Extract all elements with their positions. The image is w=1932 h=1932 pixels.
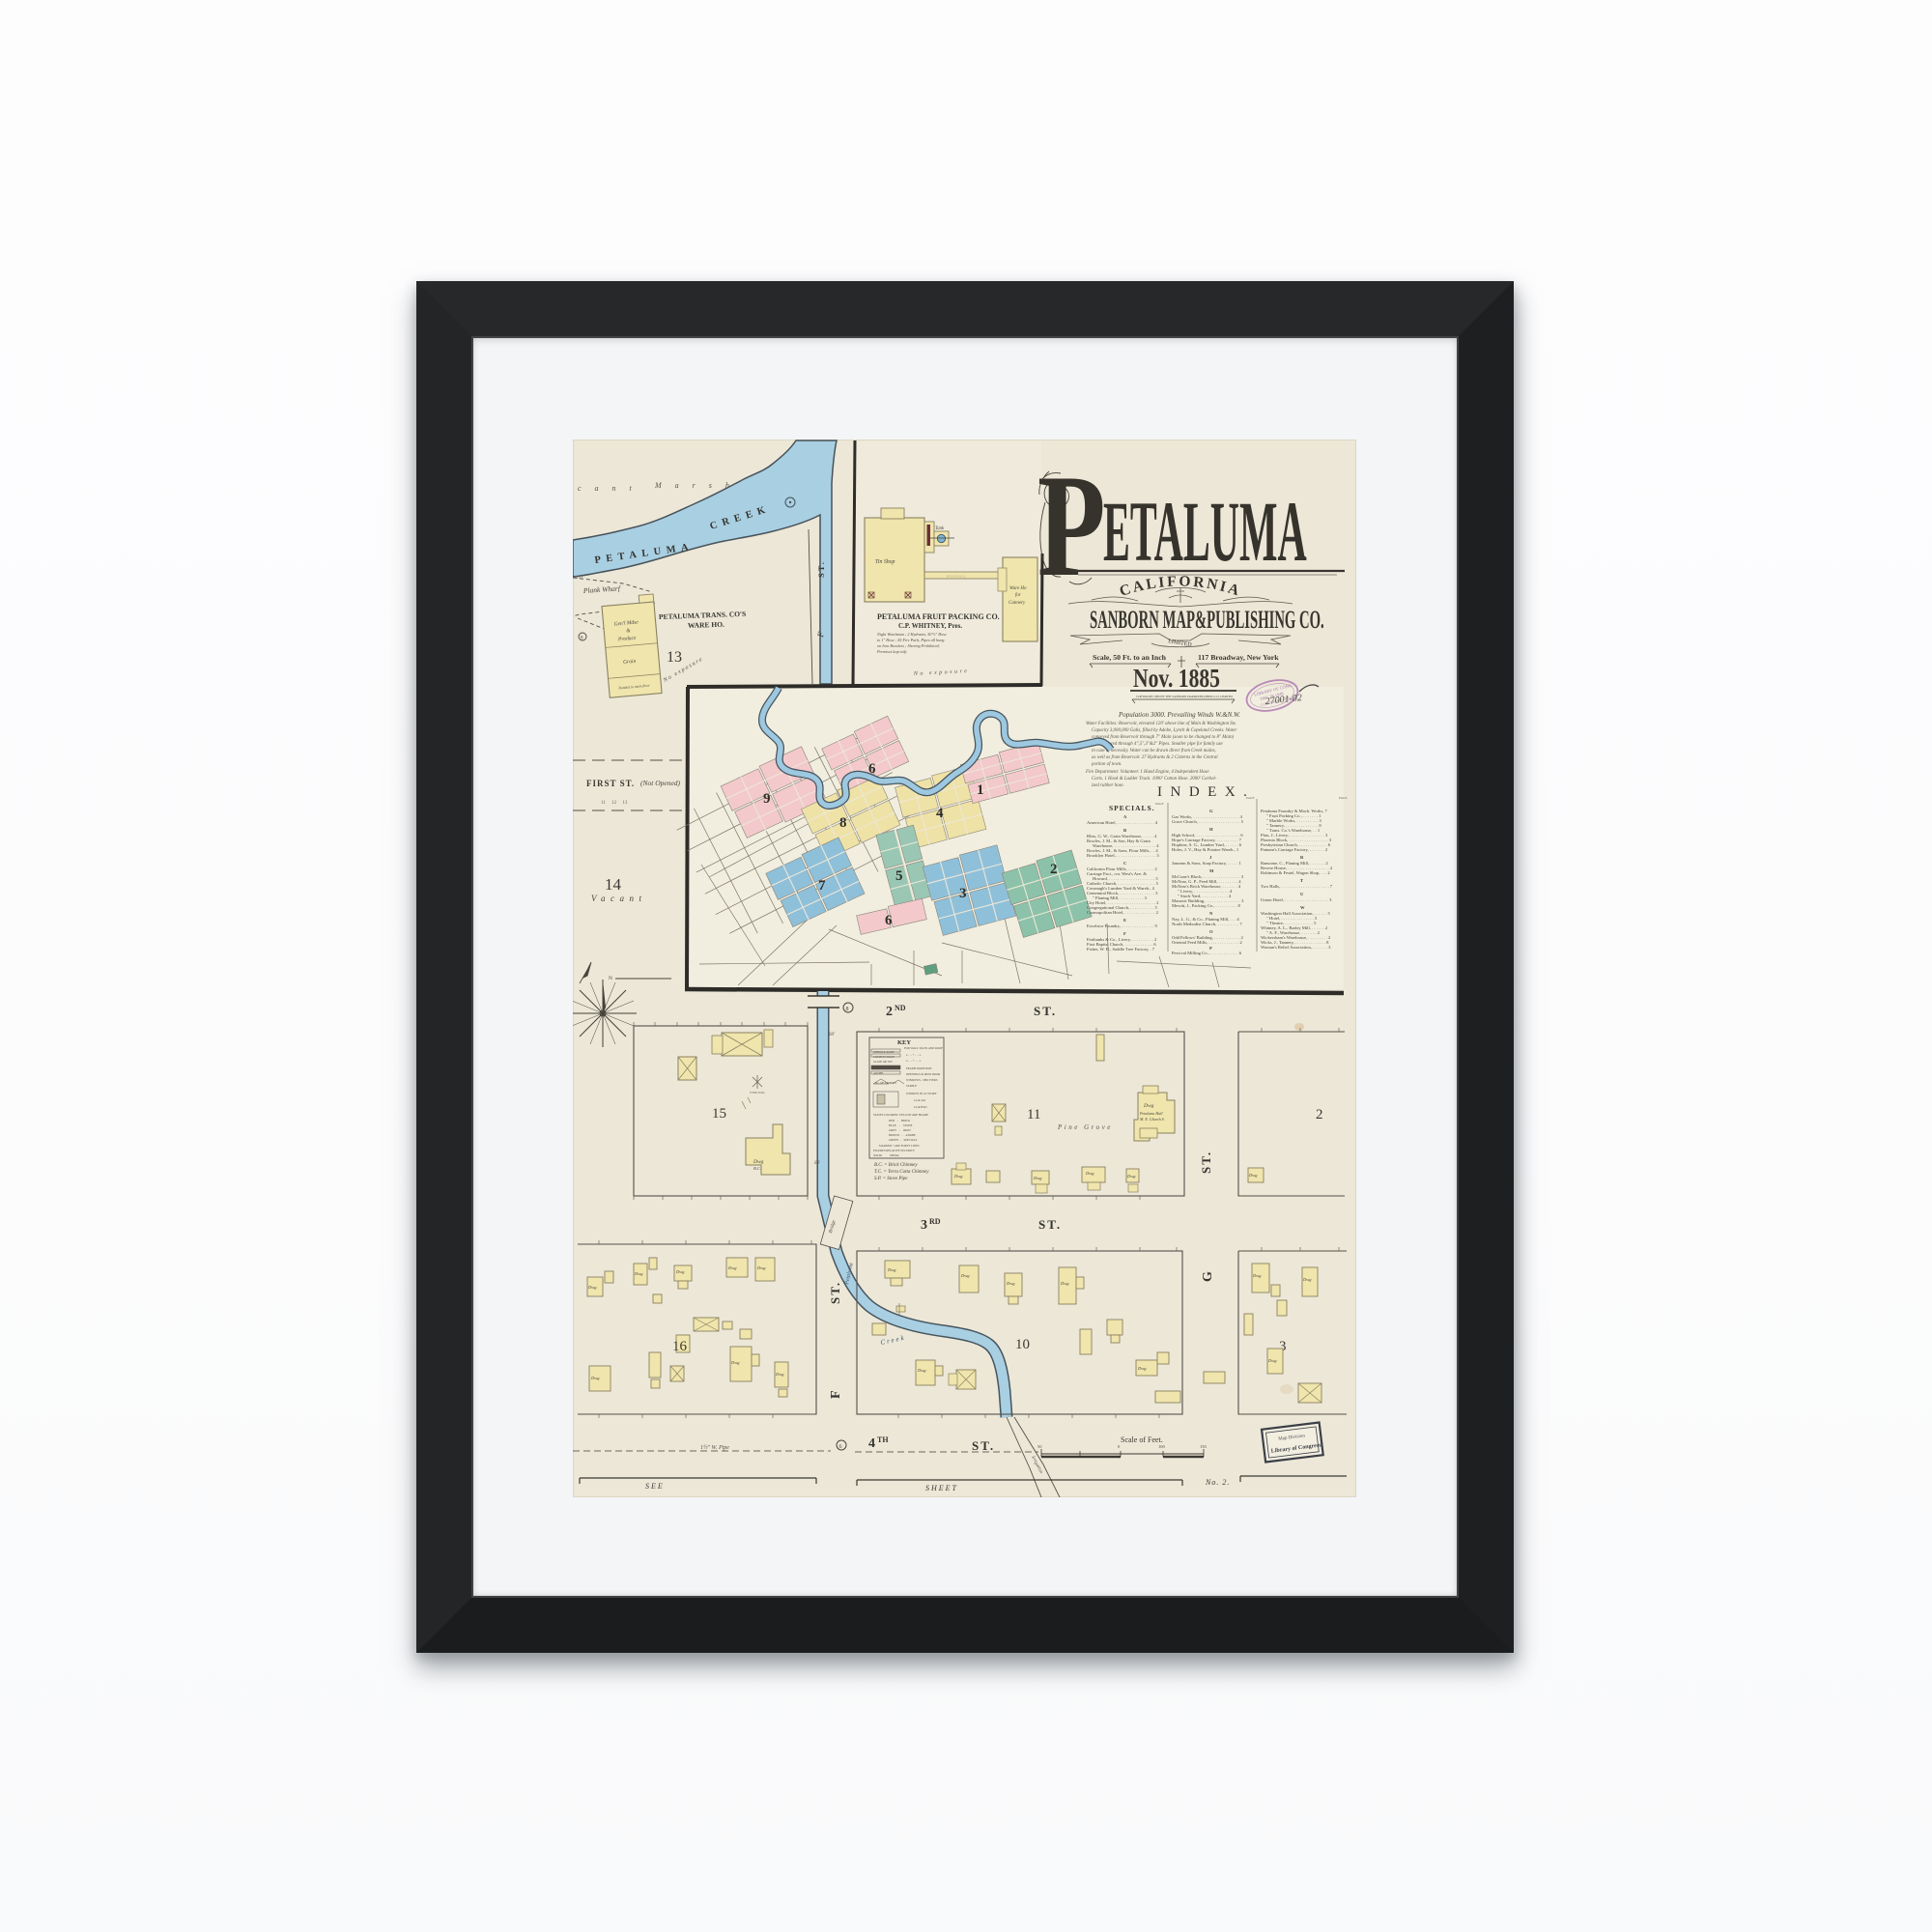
svg-text:c a n t: c a n t (578, 484, 638, 493)
svg-text:(Not Opened): (Not Opened) (640, 779, 681, 787)
svg-text:50: 50 (1037, 1444, 1042, 1449)
svg-text:ST.: ST. (1199, 1151, 1213, 1174)
svg-text:portion of town.: portion of town. (1091, 762, 1122, 767)
svg-text:Nov. 1885: Nov. 1885 (1133, 665, 1220, 694)
svg-text:60': 60' (829, 1033, 836, 1037)
svg-text:SOLID METAL: SOLID METAL (873, 1153, 899, 1157)
svg-text:G: G (1201, 1271, 1215, 1282)
svg-text:F: F (829, 1390, 843, 1399)
svg-text:x . . . + . . . o: x . . . + . . . o (906, 1053, 922, 1057)
svg-text:10: 10 (1015, 1337, 1030, 1352)
svg-text:W: W (1300, 905, 1305, 910)
svg-text:STABLE: STABLE (906, 1084, 917, 1088)
svg-text:FRAME PARTITION: FRAME PARTITION (906, 1066, 932, 1070)
svg-text:Water Facilities: Reservoir, e: Water Facilities: Reservoir, elevated 12… (1086, 722, 1236, 726)
svg-text:WINDOWS - SHUTTERS: WINDOWS - SHUTTERS (906, 1078, 938, 1082)
svg-text:S.P. = Stove Pipe: S.P. = Stove Pipe (874, 1177, 908, 1181)
svg-text:C.P. WHITNEY, Pres.: C.P. WHITNEY, Pres. (898, 622, 962, 630)
svg-text:1½" W. Pipe: 1½" W. Pipe (700, 1444, 729, 1451)
svg-text:B.C.: B.C. (753, 1166, 761, 1171)
svg-text:1: 1 (977, 782, 984, 798)
svg-text:7: 7 (818, 878, 826, 894)
svg-text:6: 6 (885, 913, 893, 928)
svg-text:ST.: ST. (828, 1281, 842, 1304)
svg-text:2: 2 (1316, 1107, 1323, 1122)
svg-text:M: M (1209, 868, 1214, 873)
svg-text:GREEN - SPECIALS: GREEN - SPECIALS (889, 1138, 918, 1142)
svg-text:SEE: SEE (645, 1482, 665, 1491)
svg-text:ND: ND (895, 1004, 906, 1012)
svg-text:Pine Grove: Pine Grove (1057, 1123, 1113, 1131)
svg-text:16: 16 (672, 1339, 688, 1354)
svg-text:ST.: ST. (816, 560, 826, 578)
svg-text:Dwg: Dwg (1085, 1171, 1094, 1176)
svg-text:ST.: ST. (972, 1438, 995, 1453)
svg-text:Dwg: Dwg (587, 1285, 597, 1290)
svg-text:Premises kept tidy: Premises kept tidy (876, 649, 907, 654)
svg-text:2: 2 (1050, 862, 1058, 877)
svg-text:on Iron Brackets ; Shoring Pro: on Iron Brackets ; Shoring Prohibited; (877, 643, 941, 648)
svg-text:4: 4 (936, 806, 944, 821)
svg-text:Dwg: Dwg (1252, 1273, 1262, 1278)
svg-text:for: for (1015, 593, 1021, 598)
svg-text:Dwg: Dwg (1143, 1103, 1154, 1109)
svg-text:13: 13 (667, 649, 682, 666)
svg-text:No. OF STORIES: No. OF STORIES (875, 1081, 896, 1085)
svg-text:KEY: KEY (897, 1039, 911, 1046)
svg-text:Dwg: Dwg (727, 1265, 737, 1270)
svg-text:G: G (1209, 809, 1213, 813)
svg-text:Dwg: Dwg (1006, 1281, 1015, 1286)
svg-text:2: 2 (886, 1005, 893, 1019)
svg-text:WIND MILL: WIND MILL (750, 1091, 765, 1094)
svg-text:SANBORN MAP&PUBLISHING CO.: SANBORN MAP&PUBLISHING CO. (1090, 606, 1324, 635)
svg-text:M a r s h: M a r s h (654, 481, 735, 490)
svg-text:RED - BRICK: RED - BRICK (889, 1119, 911, 1122)
svg-text:Vacant: Vacant (591, 894, 647, 903)
svg-text:15: 15 (712, 1106, 726, 1122)
svg-text:Dwg: Dwg (675, 1269, 685, 1274)
svg-text:Fire Department: Volunteer. 1: Fire Department: Volunteer. 1 Hand Engin… (1085, 770, 1209, 775)
svg-text:Dwg: Dwg (1126, 1174, 1136, 1179)
svg-text:FIRST ST.: FIRST ST. (586, 779, 635, 788)
svg-text:Dwg: Dwg (917, 1368, 926, 1373)
svg-text:Population 3000. Prevailing W: Population 3000. Prevailing Winds W.&N.W… (1118, 711, 1240, 719)
svg-text:FOR WALL SIGNS AND ROOF: FOR WALL SIGNS AND ROOF (904, 1046, 943, 1050)
svg-text:Scale, 50 Ft. to an Inch: Scale, 50 Ft. to an Inch (1093, 653, 1167, 662)
svg-text:6: 6 (839, 1444, 842, 1450)
svg-text:INDEX.: INDEX. (1157, 784, 1255, 800)
svg-text:ST.: ST. (1038, 1217, 1062, 1232)
svg-text:TH: TH (877, 1435, 889, 1444)
svg-text:Dwg: Dwg (753, 1159, 764, 1165)
svg-text:8: 8 (839, 815, 847, 831)
svg-text:Tank: Tank (935, 526, 945, 531)
svg-text:Dwg: Dwg (775, 1372, 784, 1377)
svg-text:P: P (1037, 445, 1106, 608)
svg-text:Dwg: Dwg (1302, 1277, 1312, 1282)
svg-text:11: 11 (1027, 1107, 1040, 1122)
svg-text:3: 3 (959, 886, 967, 901)
svg-text:150: 150 (1200, 1444, 1207, 1449)
svg-text:BROWN - ADOBE: BROWN - ADOBE (889, 1133, 916, 1137)
svg-text:H: H (1209, 827, 1213, 832)
svg-text:Tin Shop: Tin Shop (875, 559, 895, 565)
svg-text:Dwg: Dwg (1033, 1176, 1042, 1180)
svg-text:as well as from Reservoir. 27: as well as from Reservoir. 27 Hydrants &… (1092, 755, 1218, 760)
svg-text:SHEET: SHEET (925, 1484, 958, 1492)
svg-text:ST.: ST. (1034, 1004, 1057, 1018)
svg-text:SPECIALS.: SPECIALS. (1109, 804, 1155, 812)
svg-text:F: F (1123, 931, 1126, 936)
svg-text:Dwg: Dwg (1137, 1366, 1147, 1371)
svg-text:conveyed from Reservoir throug: conveyed from Reservoir through 7" Main … (1092, 735, 1235, 740)
svg-text:9: 9 (763, 791, 771, 807)
svg-text:8: 8 (846, 1007, 849, 1012)
svg-text:Dwg: Dwg (887, 1267, 896, 1272)
svg-text:PETALUMA FRUIT PACKING CO.: PETALUMA FRUIT PACKING CO. (877, 612, 1000, 621)
svg-text:Cannery: Cannery (1009, 601, 1026, 606)
svg-text:BLUE - STONE: BLUE - STONE (889, 1123, 913, 1127)
svg-text:PAGE: PAGE (1155, 802, 1164, 806)
svg-text:x . . . + . . . o: x . . . + . . . o (906, 1059, 922, 1063)
svg-text:1st & 2nd: 1st & 2nd (914, 1098, 925, 1102)
svg-text:Carts. 1 Hook & Ladder Truck.: Carts. 1 Hook & Ladder Truck. 1000' Cott… (1092, 777, 1217, 781)
svg-text:B.C. = Brick Chimney: B.C. = Brick Chimney (874, 1163, 918, 1168)
svg-text:117 Broadway, New York: 117 Broadway, New York (1198, 653, 1279, 662)
svg-text:60': 60' (814, 1161, 821, 1166)
svg-text:11 12 13: 11 12 13 (601, 801, 628, 806)
svg-text:O: O (1209, 929, 1213, 934)
svg-text:Dwg: Dwg (1267, 1358, 1277, 1363)
svg-text:N: N (609, 976, 612, 981)
svg-text:Ware Ho: Ware Ho (1009, 586, 1027, 591)
svg-text:MARKED + ARE FORTY LINES: MARKED + ARE FORTY LINES (879, 1144, 920, 1148)
svg-text:C: C (1123, 861, 1126, 866)
svg-text:OPENINGS & IRON DOOR: OPENINGS & IRON DOOR (906, 1072, 940, 1076)
svg-text:E: E (1123, 918, 1126, 923)
svg-text:Grain: Grain (623, 659, 637, 666)
svg-text:4: 4 (868, 1436, 875, 1451)
svg-text:No. 2.: No. 2. (1205, 1478, 1230, 1487)
svg-text:GREY - IRON: GREY - IRON (889, 1128, 911, 1132)
svg-text:COPYRIGHT 1885 BY THE SANBORN: COPYRIGHT 1885 BY THE SANBORN MAP&PUBLIS… (1136, 695, 1234, 698)
svg-text:PAGE: PAGE (1339, 796, 1348, 800)
svg-text:FIGURES RELATIVE SECURITY: FIGURES RELATIVE SECURITY (873, 1149, 916, 1152)
svg-text:ADOBE: ADOBE (873, 1071, 884, 1075)
svg-text:Dwg: Dwg (590, 1376, 600, 1380)
svg-text:5: 5 (895, 868, 903, 884)
svg-text:14: 14 (605, 875, 622, 894)
svg-text:T.C. = Terra Cotta Chimney: T.C. = Terra Cotta Chimney (874, 1170, 929, 1175)
svg-text:Dwg: Dwg (953, 1174, 963, 1179)
svg-text:WINDOW IN 1st STORY: WINDOW IN 1st STORY (906, 1092, 937, 1095)
svg-text:100: 100 (1158, 1444, 1166, 1449)
svg-text:ETALUMA: ETALUMA (1103, 485, 1307, 581)
svg-text:H O S E W A L L: H O S E W A L L (947, 576, 966, 579)
svg-text:Dwg: Dwg (756, 1265, 766, 1270)
svg-text:Capacity 3,000,000 Galls, fill: Capacity 3,000,000 Galls, filled by Adob… (1092, 728, 1236, 733)
svg-text:Dwg: Dwg (1248, 1173, 1258, 1178)
svg-text:T: T (1300, 878, 1303, 883)
svg-text:Dwg: Dwg (1060, 1281, 1069, 1286)
svg-text:B: B (1123, 828, 1126, 833)
svg-text:Dwg: Dwg (730, 1360, 740, 1365)
svg-text:370: 370 (576, 575, 583, 580)
svg-text:Petaluma Hall: Petaluma Hall (1139, 1111, 1163, 1116)
svg-text:ized rubber hose.: ized rubber hose. (1092, 783, 1124, 788)
svg-text:SLATE OR TIN: SLATE OR TIN (873, 1060, 893, 1064)
svg-text:RD: RD (929, 1217, 941, 1226)
svg-text:Dwg: Dwg (960, 1273, 970, 1278)
svg-text:Dwg: Dwg (634, 1271, 643, 1276)
svg-text:PAGE: PAGE (1246, 796, 1255, 800)
svg-text:1st & B'm't: 1st & B'm't (914, 1105, 927, 1109)
svg-text:STATES COLORED: YELLOW ARE FR: STATES COLORED: YELLOW ARE FRAME (873, 1113, 928, 1117)
svg-text:M. E. Church S.: M. E. Church S. (1139, 1117, 1165, 1122)
svg-text:Scale of Feet.: Scale of Feet. (1121, 1435, 1163, 1444)
svg-text:3: 3 (921, 1218, 927, 1233)
svg-text:WARE HO.: WARE HO. (688, 620, 724, 630)
